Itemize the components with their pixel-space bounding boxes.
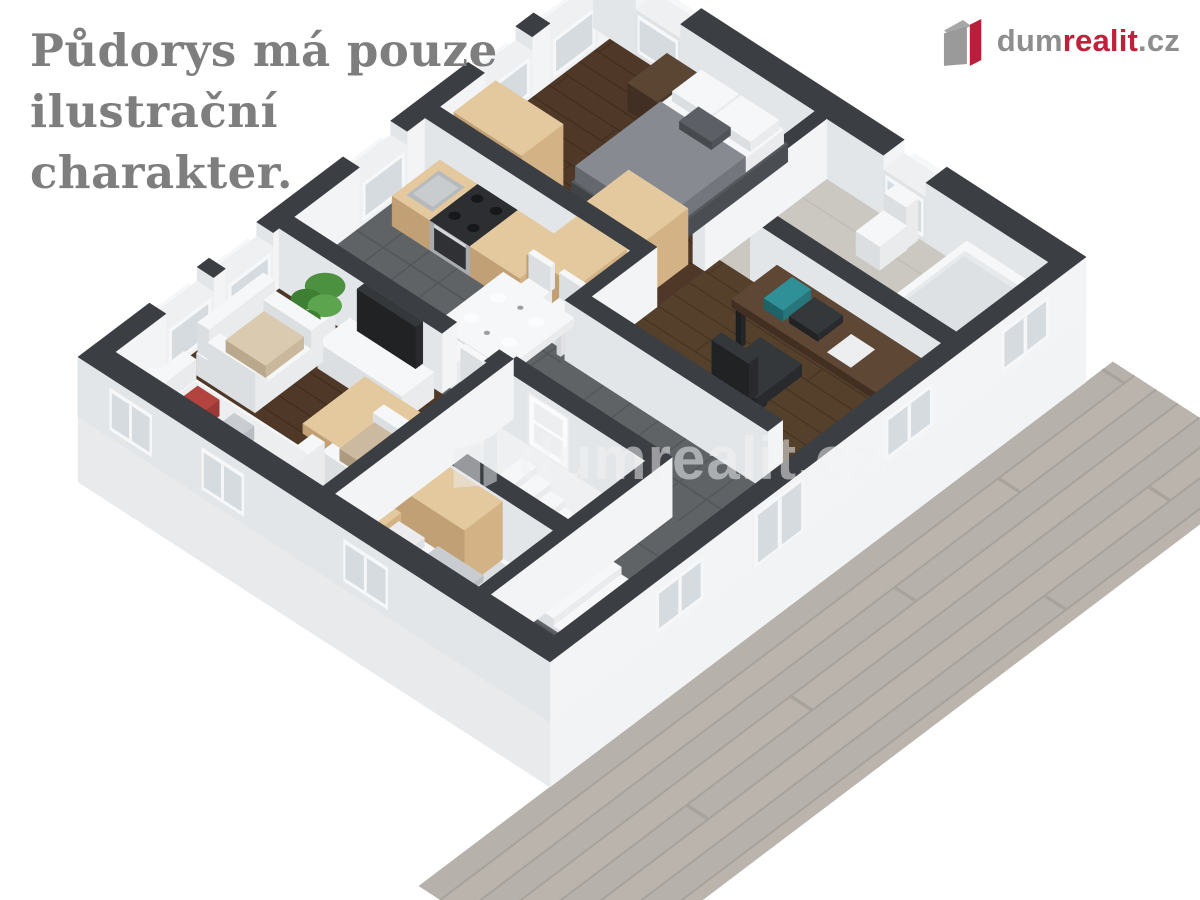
brand-logo-icon — [943, 14, 987, 68]
brand-text-prefix: dum — [997, 23, 1063, 58]
brand-text-accent: realit — [1063, 23, 1138, 58]
disclaimer-line-1: Půdorys má pouze — [30, 20, 550, 81]
brand-logo[interactable]: dumrealit.cz — [943, 14, 1180, 68]
disclaimer-text: Půdorys má pouze ilustrační charakter. — [30, 20, 550, 203]
disclaimer-line-2: ilustrační — [30, 81, 550, 142]
brand-logo-text: dumrealit.cz — [997, 23, 1180, 59]
brand-icon-front — [944, 27, 967, 66]
page: dumrealit.cz Půdorys má pouze ilustrační… — [0, 0, 1200, 900]
brand-text-suffix: .cz — [1138, 23, 1180, 58]
brand-icon-side — [969, 19, 980, 66]
disclaimer-line-3: charakter. — [30, 142, 550, 203]
